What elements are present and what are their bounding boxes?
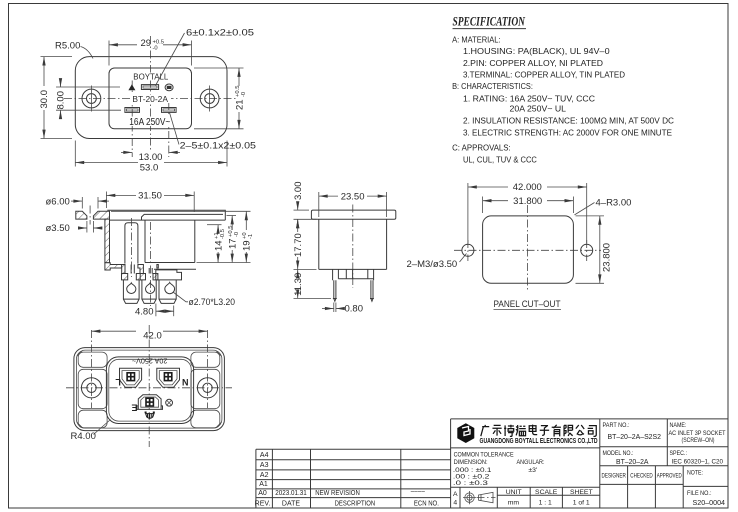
svg-text:R4.00: R4.00 [71, 431, 96, 442]
svg-text:±3': ±3' [528, 467, 537, 474]
svg-text:0.80: 0.80 [345, 304, 364, 315]
svg-text:19: 19 [242, 240, 253, 251]
svg-text:2.PIN: COPPER ALLOY, NI PLATED: 2.PIN: COPPER ALLOY, NI PLATED [463, 58, 603, 68]
svg-text:4: 4 [453, 500, 457, 507]
svg-text:-0: -0 [153, 45, 158, 51]
svg-text:21: 21 [235, 99, 246, 110]
svg-text:-0: -0 [241, 92, 247, 97]
svg-text:L: L [115, 377, 121, 387]
svg-text:R5.00: R5.00 [55, 41, 80, 52]
svg-text:GUANGDONG BOYTALL ELECTRONICS: GUANGDONG BOYTALL ELECTRONICS CO.,LTD [480, 438, 598, 445]
svg-text:A: A [453, 491, 458, 498]
svg-text:30.0: 30.0 [39, 90, 50, 109]
svg-text:NAME:: NAME: [670, 422, 687, 429]
svg-text:UNIT: UNIT [506, 489, 522, 496]
svg-text:2. INSULATION RESISTANCE: 100M: 2. INSULATION RESISTANCE: 100MΩ MIN, AT … [463, 116, 674, 126]
svg-text:23.800: 23.800 [602, 243, 613, 272]
svg-text:17: 17 [227, 238, 238, 249]
svg-text:PANEL CUT–OUT: PANEL CUT–OUT [494, 299, 561, 310]
svg-text:1 of 1: 1 of 1 [573, 499, 590, 506]
svg-text:FILE NO.:: FILE NO.: [687, 490, 712, 497]
svg-text:BT–20–2A: BT–20–2A [616, 457, 649, 466]
svg-text:A: MATERIAL:: A: MATERIAL: [452, 34, 501, 44]
svg-text:DIMENSION:: DIMENSION: [454, 459, 488, 466]
svg-text:-0.5: -0.5 [220, 229, 226, 239]
svg-text:S20–0004: S20–0004 [693, 498, 726, 507]
svg-text:20A 250V~ UL: 20A 250V~ UL [510, 104, 567, 114]
svg-text:-0: -0 [234, 232, 240, 237]
svg-text:20A 250V~: 20A 250V~ [131, 357, 167, 366]
svg-text:1. RATING: 16A 250V~ TUV, CCC: 1. RATING: 16A 250V~ TUV, CCC [463, 93, 595, 103]
svg-text:16A 250V~: 16A 250V~ [129, 117, 170, 128]
svg-text:53.0: 53.0 [140, 163, 159, 174]
svg-text:AC INLET 3P SOCKET: AC INLET 3P SOCKET [669, 430, 726, 437]
svg-text:−−−−: −−−− [410, 489, 425, 496]
svg-text:A0: A0 [258, 490, 267, 497]
svg-text:SPEC.:: SPEC.: [670, 450, 688, 457]
svg-text:ECN NO.: ECN NO. [414, 500, 439, 507]
svg-text:PART NO.:: PART NO.: [603, 422, 630, 429]
svg-text:BOYTALL: BOYTALL [133, 72, 169, 81]
svg-text:A4: A4 [260, 452, 269, 459]
svg-text:(SCREW–ON): (SCREW–ON) [682, 437, 715, 444]
svg-text:SPECIFICATION: SPECIFICATION [453, 14, 526, 29]
svg-text:mm: mm [508, 499, 520, 506]
svg-text:ø2.70*L3.20: ø2.70*L3.20 [189, 297, 236, 308]
svg-text:42.000: 42.000 [513, 182, 542, 193]
svg-text:E: E [131, 403, 137, 413]
svg-text:4–R3.00: 4–R3.00 [596, 198, 632, 209]
svg-text:14: 14 [213, 240, 224, 251]
svg-text:A1: A1 [259, 481, 268, 488]
svg-text:BT–20–2A–S2S2: BT–20–2A–S2S2 [608, 432, 662, 441]
svg-text:3.00: 3.00 [293, 182, 304, 201]
svg-text:23.50: 23.50 [341, 191, 365, 202]
svg-text:ø3.50: ø3.50 [46, 223, 70, 234]
svg-text:6±0.1x2±0.05: 6±0.1x2±0.05 [186, 28, 254, 39]
svg-text:ø6.00: ø6.00 [46, 196, 70, 207]
svg-text:NOTE:: NOTE: [687, 469, 703, 476]
svg-text:DESIGNER: DESIGNER [601, 473, 626, 480]
svg-text:N: N [182, 377, 189, 387]
svg-text:B: CHARACTERISTICS:: B: CHARACTERISTICS: [452, 81, 533, 91]
svg-text:REV.: REV. [255, 500, 271, 507]
svg-text:C: APPROVALS:: C: APPROVALS: [452, 143, 511, 153]
svg-text:2–M3/ø3.50: 2–M3/ø3.50 [407, 259, 458, 270]
svg-text:42.0: 42.0 [143, 330, 162, 341]
svg-text:SHEET: SHEET [570, 489, 593, 496]
svg-text:-1: -1 [248, 234, 254, 239]
svg-text:31.50: 31.50 [138, 191, 162, 202]
svg-text:IEC 60320–1, C20: IEC 60320–1, C20 [672, 459, 724, 466]
svg-text:.0 : ±0.3: .0 : ±0.3 [453, 480, 488, 487]
svg-text:2023.01.31: 2023.01.31 [275, 490, 307, 497]
svg-text:A3: A3 [260, 462, 269, 469]
svg-text:A2: A2 [260, 472, 269, 479]
svg-text:8.00: 8.00 [56, 91, 67, 110]
svg-text:3.TERMINAL: COPPER ALLOY, TIN: 3.TERMINAL: COPPER ALLOY, TIN PLATED [463, 70, 625, 80]
svg-text:BT-20-2A: BT-20-2A [132, 95, 168, 104]
svg-text:29: 29 [141, 38, 152, 49]
svg-text:COMMON TOLERANCE: COMMON TOLERANCE [454, 451, 514, 458]
svg-text:DATE: DATE [282, 500, 300, 507]
svg-text:1.HOUSING: PA(BLACK), UL 94V–0: 1.HOUSING: PA(BLACK), UL 94V–0 [463, 46, 610, 56]
svg-text:ANGULAR:: ANGULAR: [517, 459, 545, 466]
svg-text:NEW REVISION: NEW REVISION [315, 490, 360, 497]
svg-text:3. ELECTRIC STRENGTH: AC 2000V: 3. ELECTRIC STRENGTH: AC 2000V FOR ONE M… [463, 127, 672, 137]
svg-text:2–5±0.1x2±0.05: 2–5±0.1x2±0.05 [180, 140, 256, 151]
svg-text:17.70: 17.70 [293, 233, 304, 257]
svg-text:4.80: 4.80 [135, 307, 154, 318]
svg-text:11.30: 11.30 [293, 273, 304, 296]
svg-text:1 : 1: 1 : 1 [539, 499, 552, 506]
svg-text:CHECKED: CHECKED [630, 473, 653, 480]
svg-text:APPROVED: APPROVED [657, 473, 682, 480]
svg-text:31.800: 31.800 [513, 196, 542, 207]
svg-text:13.00: 13.00 [139, 152, 163, 163]
svg-text:DESCRIPTION: DESCRIPTION [335, 500, 376, 507]
svg-text:UL, CUL, TUV & CCC: UL, CUL, TUV & CCC [463, 154, 537, 164]
svg-text:SCALE: SCALE [535, 489, 558, 496]
